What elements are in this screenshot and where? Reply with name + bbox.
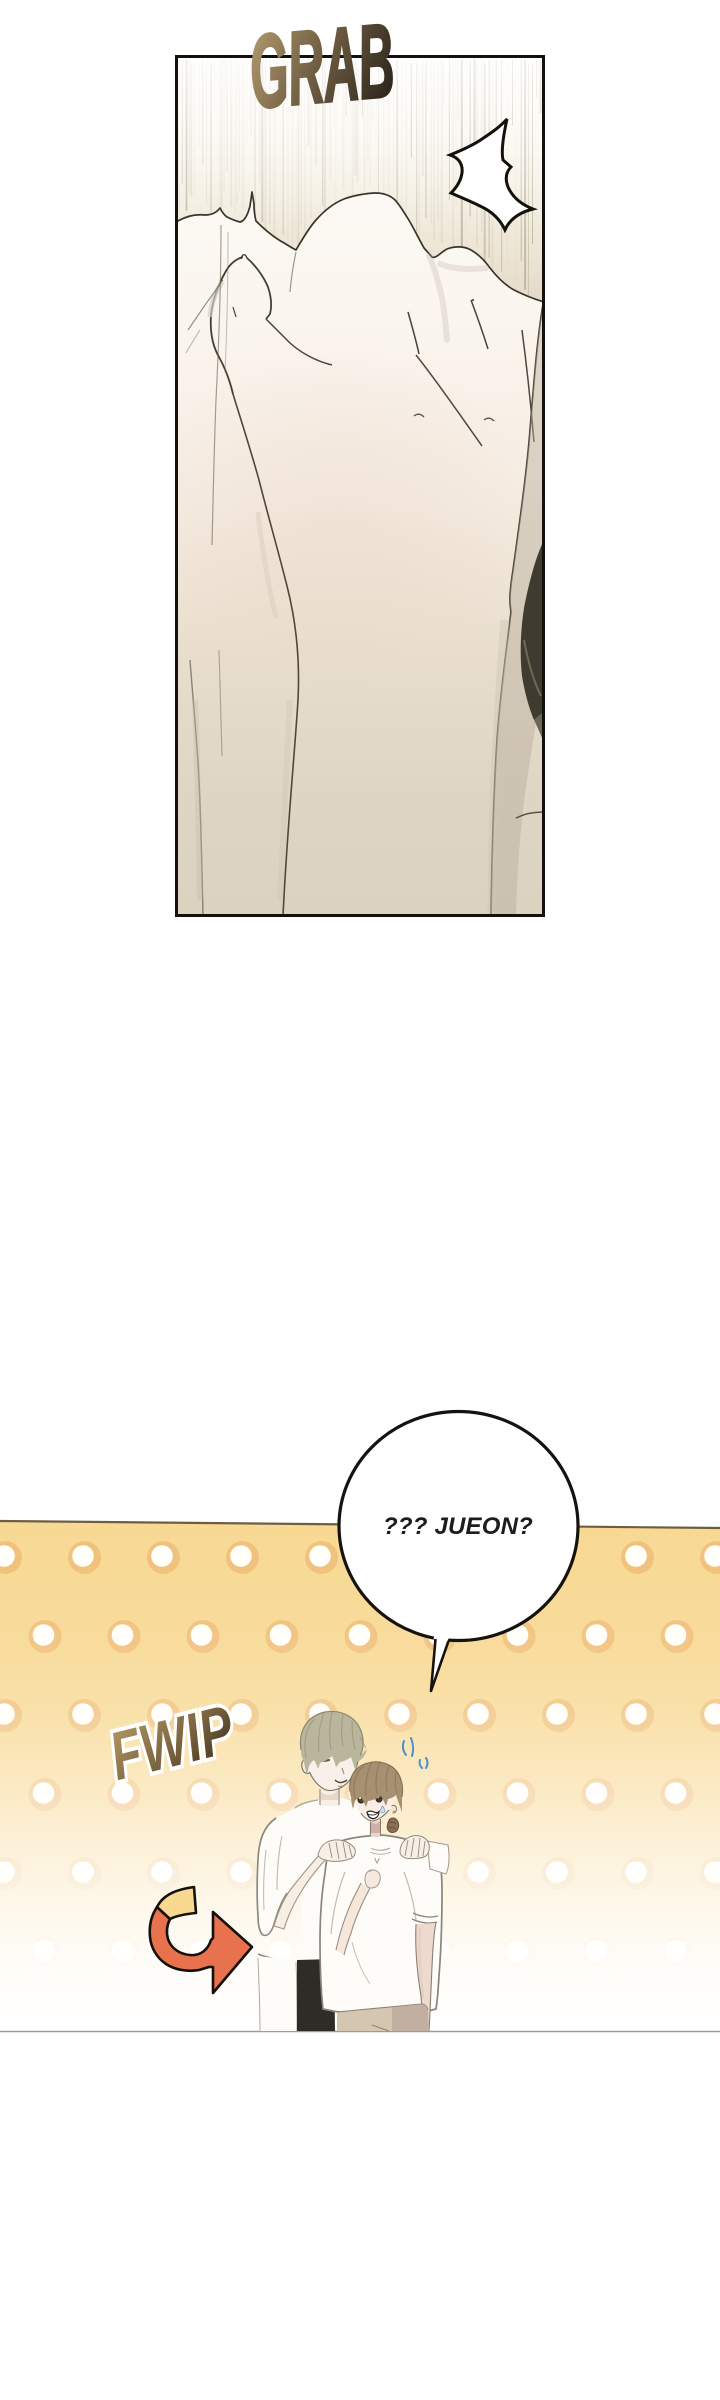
svg-text:GRAB: GRAB bbox=[245, 3, 399, 131]
svg-text:??? JUEON?: ??? JUEON? bbox=[383, 1513, 533, 1540]
